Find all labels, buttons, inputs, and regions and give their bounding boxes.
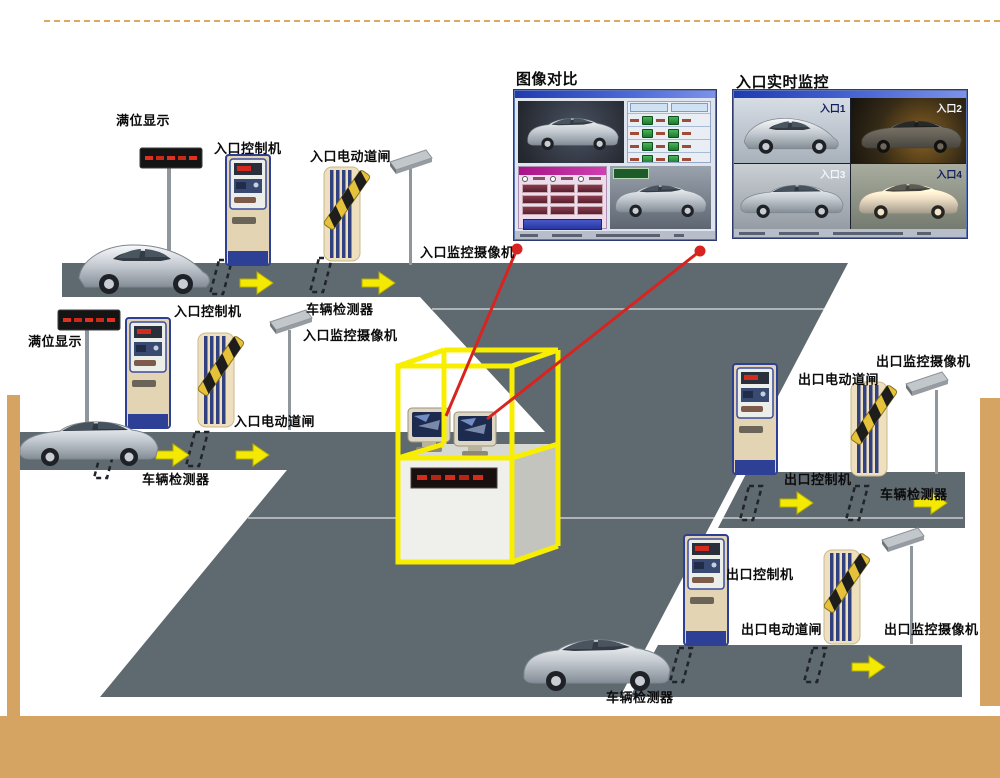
full-display-sign-2 (58, 310, 120, 330)
label-vehicle-detector-3: 车辆检测器 (880, 484, 948, 503)
realtime-monitor-window: 入口1 入口2 入口3 入口4 (733, 90, 967, 238)
label-exit-barrier-2: 出口电动道闸 (741, 619, 822, 638)
label-entrance-camera-2: 入口监控摄像机 (303, 325, 398, 344)
label-vehicle-detector-2: 车辆检测器 (142, 469, 210, 488)
slide-canvas: 满位显示 入口控制机 入口电动道闸 入口监控摄像机 车辆检测器 满位显示 入口控… (0, 0, 1000, 778)
label-vehicle-detector-1: 车辆检测器 (306, 299, 374, 318)
panel-confirm-button (523, 219, 602, 230)
compare-photo-small (610, 166, 711, 229)
label-image-compare-title: 图像对比 (516, 68, 578, 89)
label-realtime-monitor-title: 入口实时监控 (736, 71, 829, 92)
exit-controller-kiosk-1 (733, 364, 777, 474)
slide-bottom-accent-band (0, 716, 1000, 778)
exit-camera-2-icon (882, 528, 924, 552)
label-exit-camera-1: 出口监控摄像机 (876, 351, 971, 370)
panel-header-bar (519, 167, 606, 175)
car-entrance-lane-1 (79, 245, 209, 294)
camera-cell-label: 入口4 (936, 166, 962, 181)
label-exit-barrier-1: 出口电动道闸 (798, 369, 879, 388)
green-car-icon (642, 116, 653, 125)
green-car-icon (668, 142, 679, 151)
camera-cell-label: 入口1 (820, 100, 846, 115)
entrance-barrier-gate-1 (323, 167, 371, 261)
label-entrance-controller-1: 入口控制机 (214, 138, 282, 157)
camera-cell-entrance-4: 入口4 (851, 164, 967, 229)
camera-cell-label: 入口2 (936, 100, 962, 115)
label-full-display-2: 满位显示 (28, 331, 82, 350)
compare-titlebar (515, 91, 715, 98)
camera-cell-label: 入口3 (820, 166, 846, 181)
exit-lane-2-road (630, 645, 962, 697)
link-dot-2 (695, 246, 706, 257)
compare-statusbar (515, 231, 715, 239)
green-car-icon (668, 129, 679, 138)
booth-led-display (411, 468, 497, 488)
camera-cell-entrance-3: 入口3 (734, 164, 850, 229)
monitor-titlebar (734, 91, 966, 98)
green-car-icon (668, 155, 679, 164)
image-compare-window (514, 90, 716, 240)
camera-cell-entrance-1: 入口1 (734, 98, 850, 163)
entrance-controller-kiosk-2 (126, 318, 170, 428)
compare-photo-large (518, 101, 624, 163)
label-full-display-1: 满位显示 (116, 110, 170, 129)
camera-cell-entrance-2: 入口2 (851, 98, 967, 163)
green-car-icon (642, 155, 653, 164)
green-car-icon (642, 129, 653, 138)
slide-left-accent-bar (7, 395, 20, 718)
label-entrance-camera-1: 入口监控摄像机 (420, 242, 515, 261)
monitor-statusbar (734, 229, 966, 237)
entrance-controller-kiosk-1 (226, 155, 270, 265)
compare-control-panel (518, 166, 607, 229)
label-exit-camera-2: 出口监控摄像机 (884, 619, 979, 638)
green-car-icon (668, 116, 679, 125)
exit-barrier-gate-2 (823, 550, 871, 644)
slide-right-accent-bar (980, 398, 1000, 706)
label-exit-controller-1: 出口控制机 (784, 469, 852, 488)
exit-controller-kiosk-2 (684, 535, 728, 645)
exit-barrier-gate-1 (850, 382, 898, 476)
label-exit-controller-2: 出口控制机 (726, 564, 794, 583)
compare-record-list (627, 101, 711, 163)
exit-camera-1-icon (906, 372, 948, 396)
label-entrance-barrier-2: 入口电动道闸 (234, 411, 315, 430)
label-vehicle-detector-4: 车辆检测器 (606, 687, 674, 706)
label-entrance-barrier-1: 入口电动道闸 (310, 146, 391, 165)
green-car-icon (642, 142, 653, 151)
label-entrance-controller-2: 入口控制机 (174, 301, 242, 320)
full-display-sign-1 (140, 148, 202, 168)
